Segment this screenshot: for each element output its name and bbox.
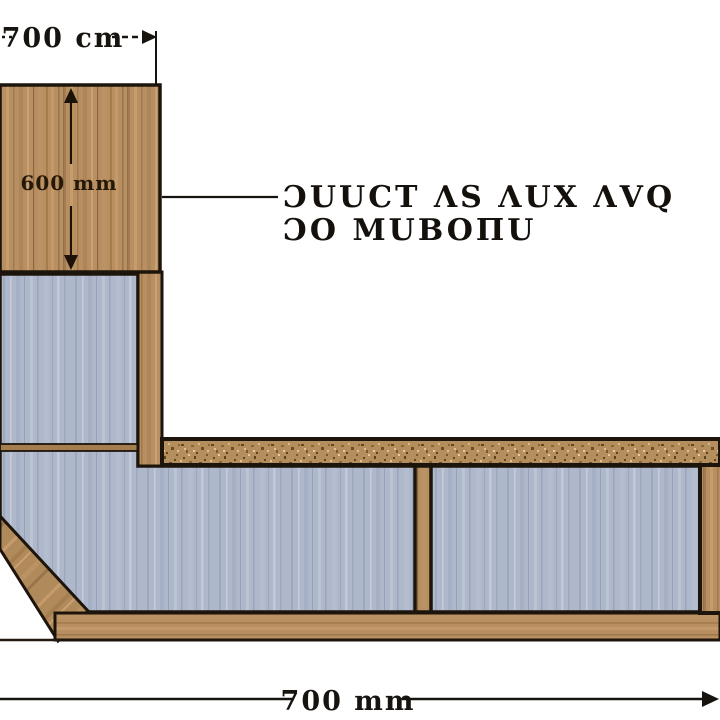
top-width-dimension-text: 700 cm [2,23,125,54]
bottom-board [55,613,720,640]
cross-section-diagram: 700 cm 600 mm ƆUUCT ΛS ΛUX ΛVQ ƆO MUBOΠU… [0,0,720,720]
right-end-cap [700,465,720,613]
callout-text-line1: ƆUUCT ΛS ΛUX ΛVQ [283,180,675,215]
callout-text-line2: ƆO MUBOΠU [283,213,536,248]
joint-strip [0,444,138,451]
panel-divider [415,466,431,612]
top-sheathing-board [162,439,720,465]
column-side-strip [138,272,162,466]
column-height-dimension-text: 600 mm [20,171,117,195]
overall-width-dimension-text: 700 mm [281,686,416,717]
diagram-canvas: 700 cm 600 mm ƆUUCT ΛS ΛUX ΛVQ ƆO MUBOΠU… [0,0,720,720]
